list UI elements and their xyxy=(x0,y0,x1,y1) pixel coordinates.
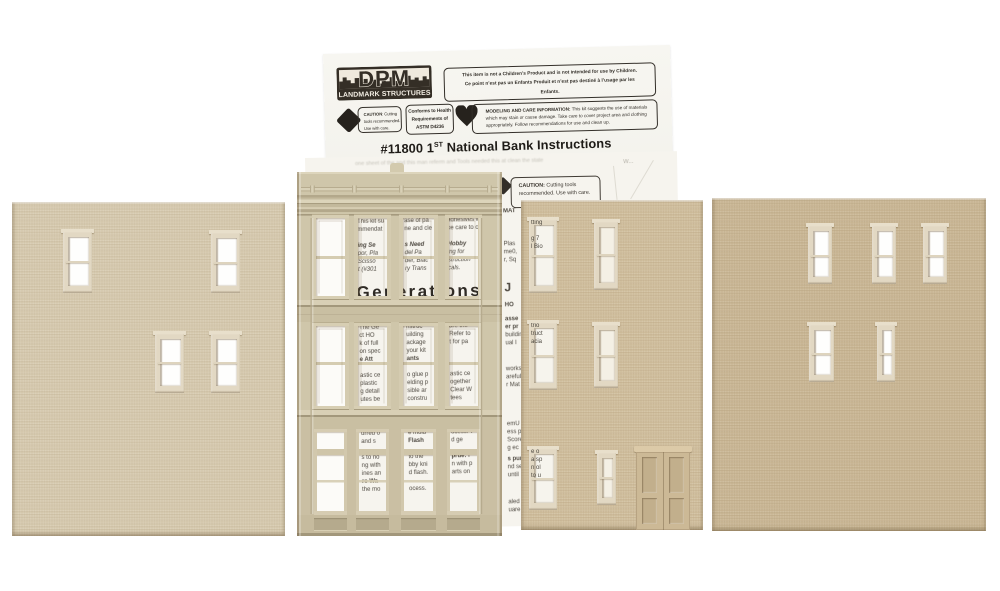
svg-text:DPM: DPM xyxy=(358,65,411,91)
